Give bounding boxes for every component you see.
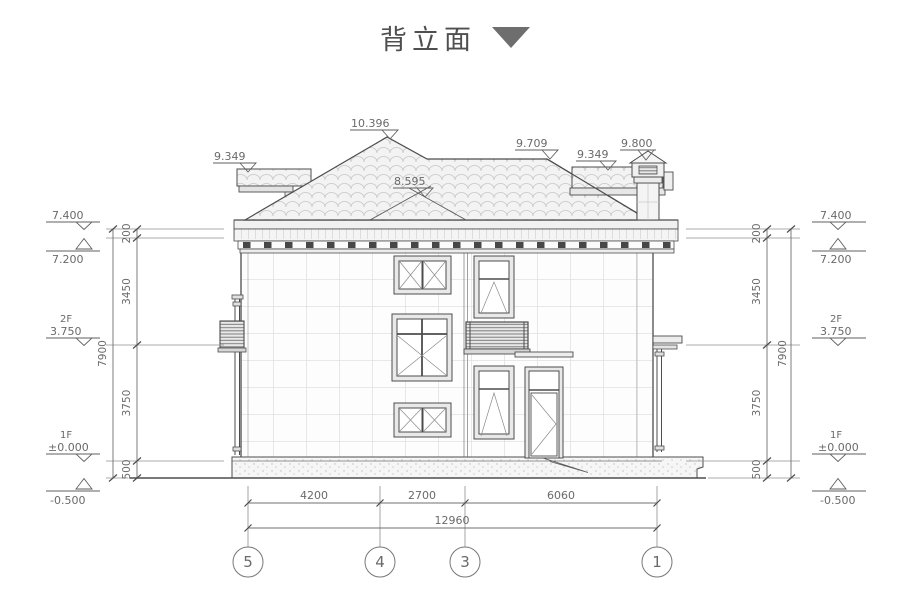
axis-label-1: 1 bbox=[652, 553, 662, 571]
level-parapet-left: 7.400 bbox=[52, 209, 84, 222]
dim-12960: 12960 bbox=[435, 514, 470, 527]
level-ground-left: -0.500 bbox=[50, 494, 85, 507]
level-ground-right: -0.500 bbox=[820, 494, 855, 507]
plinth bbox=[232, 457, 703, 478]
level-eave-right: 7.200 bbox=[820, 253, 852, 266]
floor2-name-left: 2F bbox=[60, 314, 72, 325]
elevation-drawing-canvas: 背立面 bbox=[0, 0, 910, 616]
ac-louver-box bbox=[464, 322, 530, 354]
marker-left-eave: 9.349 bbox=[214, 150, 246, 163]
right-level-markers: 7.400 7.200 2F 3.750 1F ±0.000 -0.500 bbox=[812, 209, 866, 507]
floor1-name-right: 1F bbox=[830, 430, 842, 441]
dentil-row bbox=[238, 241, 674, 249]
floor1-name-left: 1F bbox=[60, 430, 72, 441]
cornice bbox=[234, 220, 678, 253]
level-floor1-left: ±0.000 bbox=[48, 441, 89, 454]
left-vertical-dims: 200 3450 3750 500 7900 bbox=[97, 223, 141, 481]
level-eave-left: 7.200 bbox=[52, 253, 84, 266]
axis-bubbles: 5 4 3 1 bbox=[233, 547, 672, 577]
marker-mid-ridge: 8.595 bbox=[394, 175, 426, 188]
dim-200-left: 200 bbox=[121, 223, 133, 243]
window-stair-large bbox=[392, 314, 452, 381]
bottom-dims: 4200 2700 6060 12960 bbox=[245, 486, 661, 547]
axis-label-3: 3 bbox=[460, 553, 470, 571]
dim-2700: 2700 bbox=[408, 489, 436, 502]
chimney-vent bbox=[639, 166, 657, 174]
level-floor1-right: ±0.000 bbox=[818, 441, 859, 454]
level-floor2-left: 3.750 bbox=[50, 325, 82, 338]
axis-label-4: 4 bbox=[375, 553, 385, 571]
window-1f-narrow bbox=[474, 366, 514, 439]
back-elevation-drawing: 10.396 9.349 8.595 9.709 9.349 9.800 bbox=[0, 0, 910, 616]
window-2f-narrow bbox=[474, 256, 514, 318]
left-level-markers: 7.400 7.200 2F 3.750 1F ±0.000 -0.500 bbox=[46, 209, 100, 507]
window-2f-small-top bbox=[394, 256, 451, 294]
dim-6060: 6060 bbox=[547, 489, 575, 502]
left-louver-box bbox=[220, 321, 244, 348]
dim-7900-right: 7900 bbox=[777, 340, 789, 367]
dim-3450-left: 3450 bbox=[121, 278, 133, 305]
level-parapet-right: 7.400 bbox=[820, 209, 852, 222]
dim-3450-right: 3450 bbox=[751, 278, 763, 305]
marker-chimney: 9.800 bbox=[621, 137, 653, 150]
dim-3750-right: 3750 bbox=[751, 390, 763, 417]
right-downspout bbox=[653, 336, 682, 452]
dim-500-left: 500 bbox=[121, 459, 133, 479]
window-1f-small-bottom bbox=[394, 403, 451, 437]
dim-4200: 4200 bbox=[300, 489, 328, 502]
dim-500-right: 500 bbox=[751, 459, 763, 479]
level-floor2-right: 3.750 bbox=[820, 325, 852, 338]
back-door bbox=[525, 367, 563, 458]
marker-ridge: 10.396 bbox=[351, 117, 390, 130]
marker-right-band: 9.349 bbox=[577, 148, 609, 161]
dim-200-right: 200 bbox=[751, 223, 763, 243]
marker-upper-right: 9.709 bbox=[516, 137, 548, 150]
dim-3750-left: 3750 bbox=[121, 390, 133, 417]
axis-label-5: 5 bbox=[243, 553, 253, 571]
dim-7900-left: 7900 bbox=[97, 340, 109, 367]
right-vertical-dims: 200 3450 3750 500 7900 bbox=[751, 223, 795, 481]
door-canopy-ledge bbox=[515, 352, 573, 357]
floor2-name-right: 2F bbox=[830, 314, 842, 325]
